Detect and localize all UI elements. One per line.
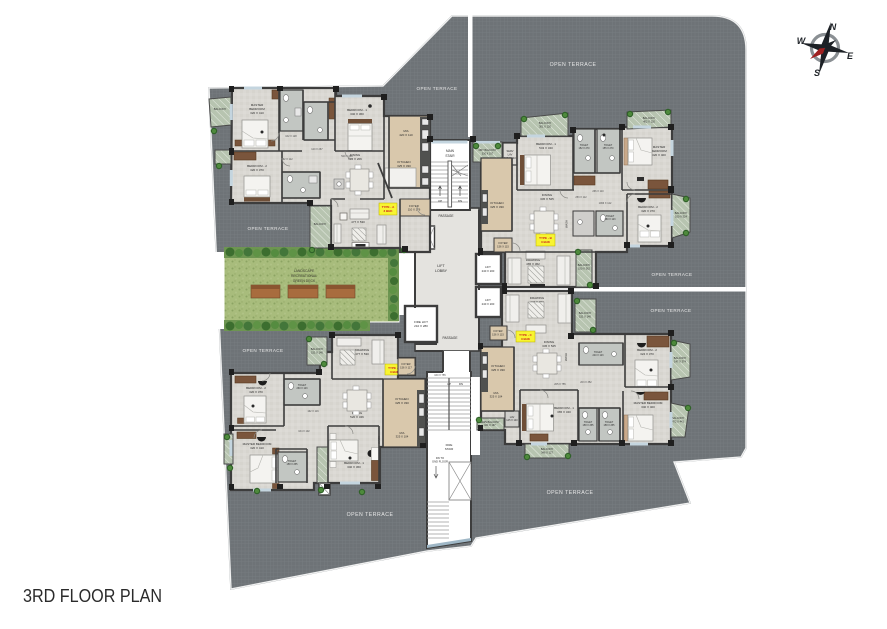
svg-text:DN: DN: [458, 199, 462, 203]
svg-text:110 X 176: 110 X 176: [408, 208, 421, 212]
svg-text:402 X 120: 402 X 120: [643, 120, 655, 124]
svg-text:101 X 197: 101 X 197: [484, 424, 496, 427]
svg-text:PASSAGE: PASSAGE: [443, 336, 458, 340]
svg-text:472 X 441: 472 X 441: [672, 420, 684, 424]
svg-text:SERV: SERV: [506, 149, 513, 153]
svg-text:DN TO: DN TO: [436, 456, 444, 460]
svg-text:N: N: [830, 22, 837, 32]
svg-text:BALCONY: BALCONY: [314, 222, 327, 226]
svg-text:325 X 330: 325 X 330: [395, 401, 409, 405]
svg-text:240 X 123: 240 X 123: [593, 354, 605, 357]
svg-text:BALCONY: BALCONY: [643, 116, 656, 120]
svg-text:BALCONY: BALCONY: [672, 416, 685, 420]
svg-text:156 X 115: 156 X 115: [497, 245, 509, 249]
svg-text:BALCONY: BALCONY: [579, 311, 592, 315]
svg-text:GND FLOOR: GND FLOOR: [432, 460, 448, 464]
svg-text:155 X 270: 155 X 270: [603, 147, 615, 150]
svg-text:BALCONY: BALCONY: [675, 211, 688, 215]
svg-text:240 X 200: 240 X 200: [482, 269, 495, 273]
svg-text:158 X 255: 158 X 255: [604, 424, 616, 427]
svg-text:E: E: [847, 51, 854, 61]
svg-text:OPEN TERRACE: OPEN TERRACE: [243, 348, 284, 353]
svg-text:160 X 755: 160 X 755: [434, 374, 446, 377]
svg-text:301 X 120: 301 X 120: [539, 125, 551, 129]
svg-text:OPEN TERRACE: OPEN TERRACE: [550, 62, 597, 68]
svg-text:477 X 530: 477 X 530: [351, 220, 365, 224]
svg-text:260 X 123: 260 X 123: [297, 387, 309, 390]
svg-text:320 X 400: 320 X 400: [652, 153, 666, 157]
svg-text:156 X 117: 156 X 117: [400, 366, 412, 370]
svg-text:420 X 110: 420 X 110: [399, 133, 413, 137]
svg-text:LAV: LAV: [508, 153, 513, 157]
svg-text:151 X 140: 151 X 140: [311, 351, 323, 355]
svg-text:320 X 410: 320 X 410: [250, 111, 264, 115]
svg-text:WASH: WASH: [565, 220, 569, 228]
svg-text:145 X 140: 145 X 140: [506, 419, 518, 422]
svg-text:147 X 374: 147 X 374: [674, 360, 686, 364]
svg-text:151 X 140: 151 X 140: [579, 315, 591, 319]
svg-text:PASSAGE: PASSAGE: [439, 214, 454, 218]
svg-text:OPEN TERRACE: OPEN TERRACE: [547, 490, 594, 496]
svg-text:477 X 530: 477 X 530: [355, 352, 369, 356]
svg-text:330 X 107: 330 X 107: [482, 153, 494, 156]
svg-text:3 BHK: 3 BHK: [521, 337, 531, 341]
svg-text:WASH: WASH: [564, 353, 568, 361]
svg-text:FOYER: FOYER: [494, 329, 503, 333]
svg-text:BALCONY: BALCONY: [214, 107, 227, 111]
svg-text:156 X 115: 156 X 115: [492, 333, 504, 337]
svg-text:162 X 128: 162 X 128: [285, 135, 297, 138]
svg-text:FOYER: FOYER: [402, 362, 411, 366]
svg-text:GREEN DECK: GREEN DECK: [293, 279, 316, 283]
svg-text:152 X 270: 152 X 270: [579, 147, 591, 150]
svg-text:164 X 102: 164 X 102: [298, 430, 310, 433]
svg-text:520 X 346: 520 X 346: [350, 415, 364, 419]
svg-text:320 X 410: 320 X 410: [250, 446, 264, 450]
svg-text:162 X 116: 162 X 116: [307, 410, 319, 413]
svg-text:BALCONY: BALCONY: [541, 447, 554, 451]
svg-text:OPEN TERRACE: OPEN TERRACE: [651, 308, 692, 313]
svg-text:S: S: [814, 68, 820, 78]
svg-text:325 X 330: 325 X 330: [491, 368, 505, 372]
svg-text:340 X 360: 340 X 360: [347, 465, 361, 469]
svg-text:RECREATIONAL: RECREATIONAL: [291, 274, 317, 278]
svg-text:162 X 112: 162 X 112: [281, 158, 293, 161]
svg-text:BALCONY: BALCONY: [311, 347, 324, 351]
svg-text:DN: DN: [459, 382, 463, 386]
svg-text:UP: UP: [438, 199, 442, 203]
svg-text:BALCONY: BALCONY: [539, 121, 552, 125]
svg-text:LANDSCAPE: LANDSCAPE: [294, 269, 315, 273]
svg-text:543 X 340: 543 X 340: [539, 146, 553, 150]
svg-text:205 X 755: 205 X 755: [554, 383, 566, 386]
svg-text:OPEN TERRACE: OPEN TERRACE: [347, 512, 394, 518]
svg-text:320 X 370: 320 X 370: [249, 390, 263, 394]
svg-text:STAIR: STAIR: [445, 154, 455, 158]
svg-text:253 X 112: 253 X 112: [575, 196, 587, 199]
svg-text:325 X 104: 325 X 104: [490, 395, 503, 399]
svg-text:324 X 370: 324 X 370: [640, 352, 654, 356]
svg-text:320 X 370: 320 X 370: [641, 209, 655, 213]
svg-text:465 X 362: 465 X 362: [526, 262, 540, 266]
svg-text:320 X 370: 320 X 370: [250, 168, 264, 172]
svg-text:100 X 524: 100 X 524: [675, 215, 687, 219]
svg-text:100 X 362: 100 X 362: [578, 267, 590, 271]
svg-text:1066 X 122: 1066 X 122: [599, 202, 612, 205]
svg-text:345 X 525: 345 X 525: [542, 344, 556, 348]
svg-text:3 BHK: 3 BHK: [541, 240, 551, 244]
svg-text:325 X 104: 325 X 104: [396, 435, 409, 439]
svg-text:MAIN: MAIN: [446, 149, 455, 153]
svg-text:OPEN TERRACE: OPEN TERRACE: [652, 272, 693, 277]
svg-text:210 X 280: 210 X 280: [414, 324, 428, 328]
svg-text:LIFT: LIFT: [437, 264, 445, 268]
svg-text:280 X 123: 280 X 123: [605, 218, 617, 221]
svg-text:OPEN TERRACE: OPEN TERRACE: [248, 226, 289, 231]
svg-text:266 X 110: 266 X 110: [592, 190, 604, 193]
svg-text:3RD FLOOR PLAN: 3RD FLOOR PLAN: [23, 586, 162, 606]
svg-text:BALCONY: BALCONY: [674, 356, 687, 360]
svg-text:STAIR: STAIR: [445, 447, 454, 451]
svg-text:345 X 525: 345 X 525: [540, 197, 554, 201]
svg-text:158 X 255: 158 X 255: [287, 463, 299, 466]
svg-text:340 X 360: 340 X 360: [350, 112, 364, 116]
svg-text:340 X 400: 340 X 400: [641, 405, 655, 409]
svg-text:158 X 255: 158 X 255: [583, 424, 595, 427]
svg-text:365 X 340: 365 X 340: [557, 410, 571, 414]
svg-text:LOBBY: LOBBY: [435, 269, 448, 273]
svg-text:FOYER: FOYER: [499, 241, 508, 245]
svg-text:BALCONY: BALCONY: [578, 263, 591, 267]
svg-text:240 X 200: 240 X 200: [482, 302, 495, 306]
svg-text:UP: UP: [447, 382, 451, 386]
svg-text:203 X 352: 203 X 352: [580, 381, 592, 384]
svg-text:346 X 127: 346 X 127: [541, 451, 553, 455]
svg-text:325 X 330: 325 X 330: [397, 164, 411, 168]
svg-text:325 X 330: 325 X 330: [490, 205, 504, 209]
svg-text:3 BHK: 3 BHK: [383, 209, 393, 213]
svg-text:OPEN TERRACE: OPEN TERRACE: [417, 86, 458, 91]
svg-text:120 X 267: 120 X 267: [311, 148, 323, 151]
